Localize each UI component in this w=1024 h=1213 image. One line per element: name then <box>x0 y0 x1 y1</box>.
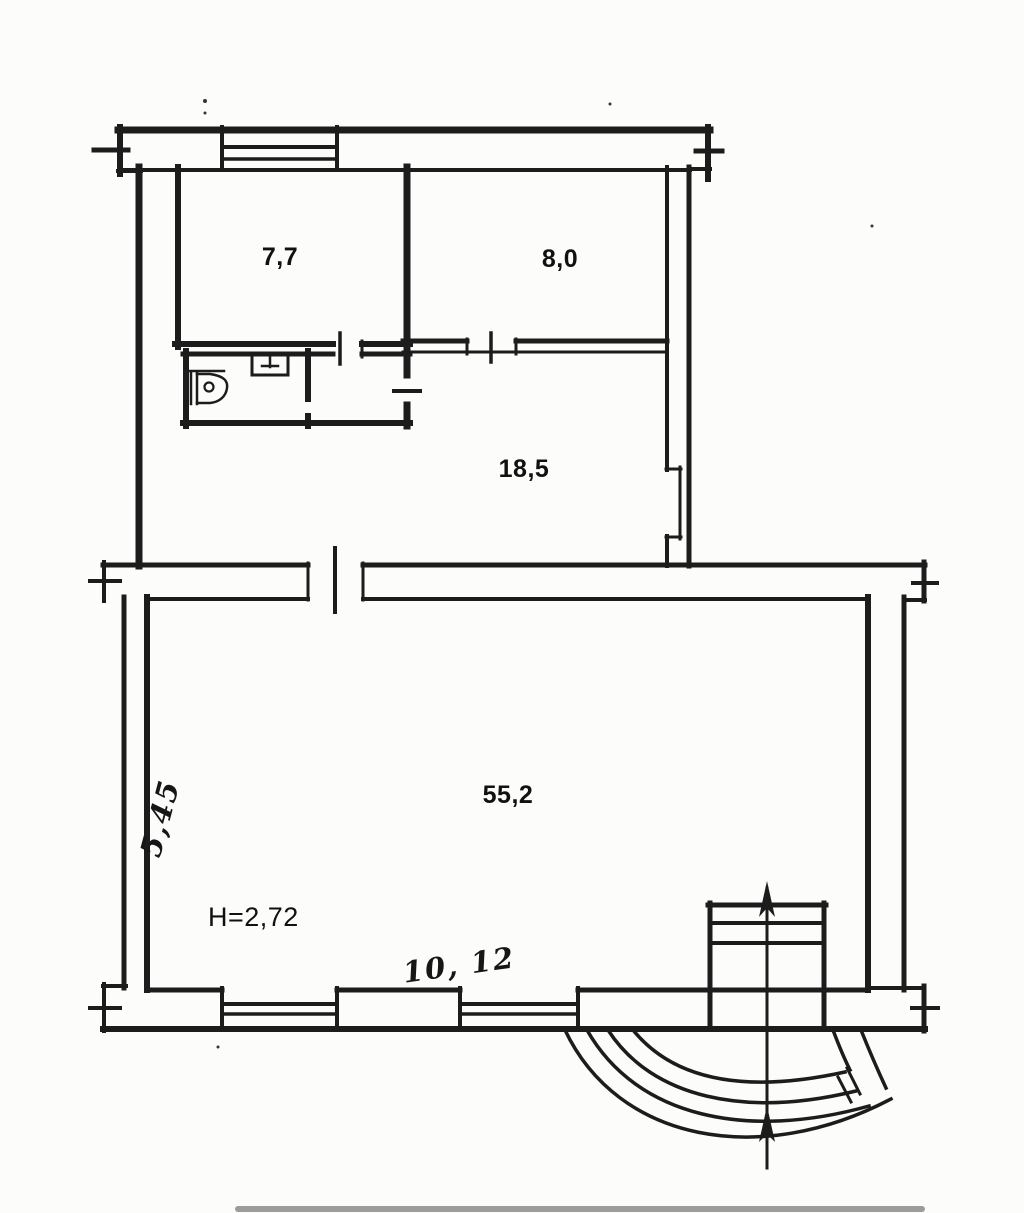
ceiling-height-note: H=2,72 <box>208 902 299 933</box>
interior-partitions <box>175 167 667 426</box>
scan-smudge <box>235 1206 925 1212</box>
scan-dot <box>203 99 207 103</box>
sink <box>252 354 288 375</box>
room-area-label-55-2: 55,2 <box>448 781 568 810</box>
scan-dot <box>217 1046 220 1049</box>
step-break-line <box>838 1077 851 1102</box>
scan-dot <box>609 103 612 106</box>
floor-plan: 7,7 8,0 18,5 55,2 H=2,72 5,45 10, 12 <box>0 0 1024 1213</box>
toilet <box>186 371 227 404</box>
window-bottom-left <box>222 988 337 1030</box>
scan-dot <box>871 225 874 228</box>
window-bottom-right <box>460 988 578 1030</box>
room-area-label-18-5: 18,5 <box>464 455 584 484</box>
toilet-drain <box>205 383 214 392</box>
axis-tick-marks <box>90 150 938 1008</box>
room-area-label-7-7: 7,7 <box>220 243 340 272</box>
step-arc <box>633 1030 845 1082</box>
curved-entrance-steps <box>565 1030 891 1137</box>
floor-plan-drawing <box>0 0 1024 1213</box>
step-arc-right <box>861 1030 886 1088</box>
step-arc-right <box>833 1030 850 1070</box>
room-area-label-8-0: 8,0 <box>500 245 620 274</box>
scan-dot <box>204 112 207 115</box>
